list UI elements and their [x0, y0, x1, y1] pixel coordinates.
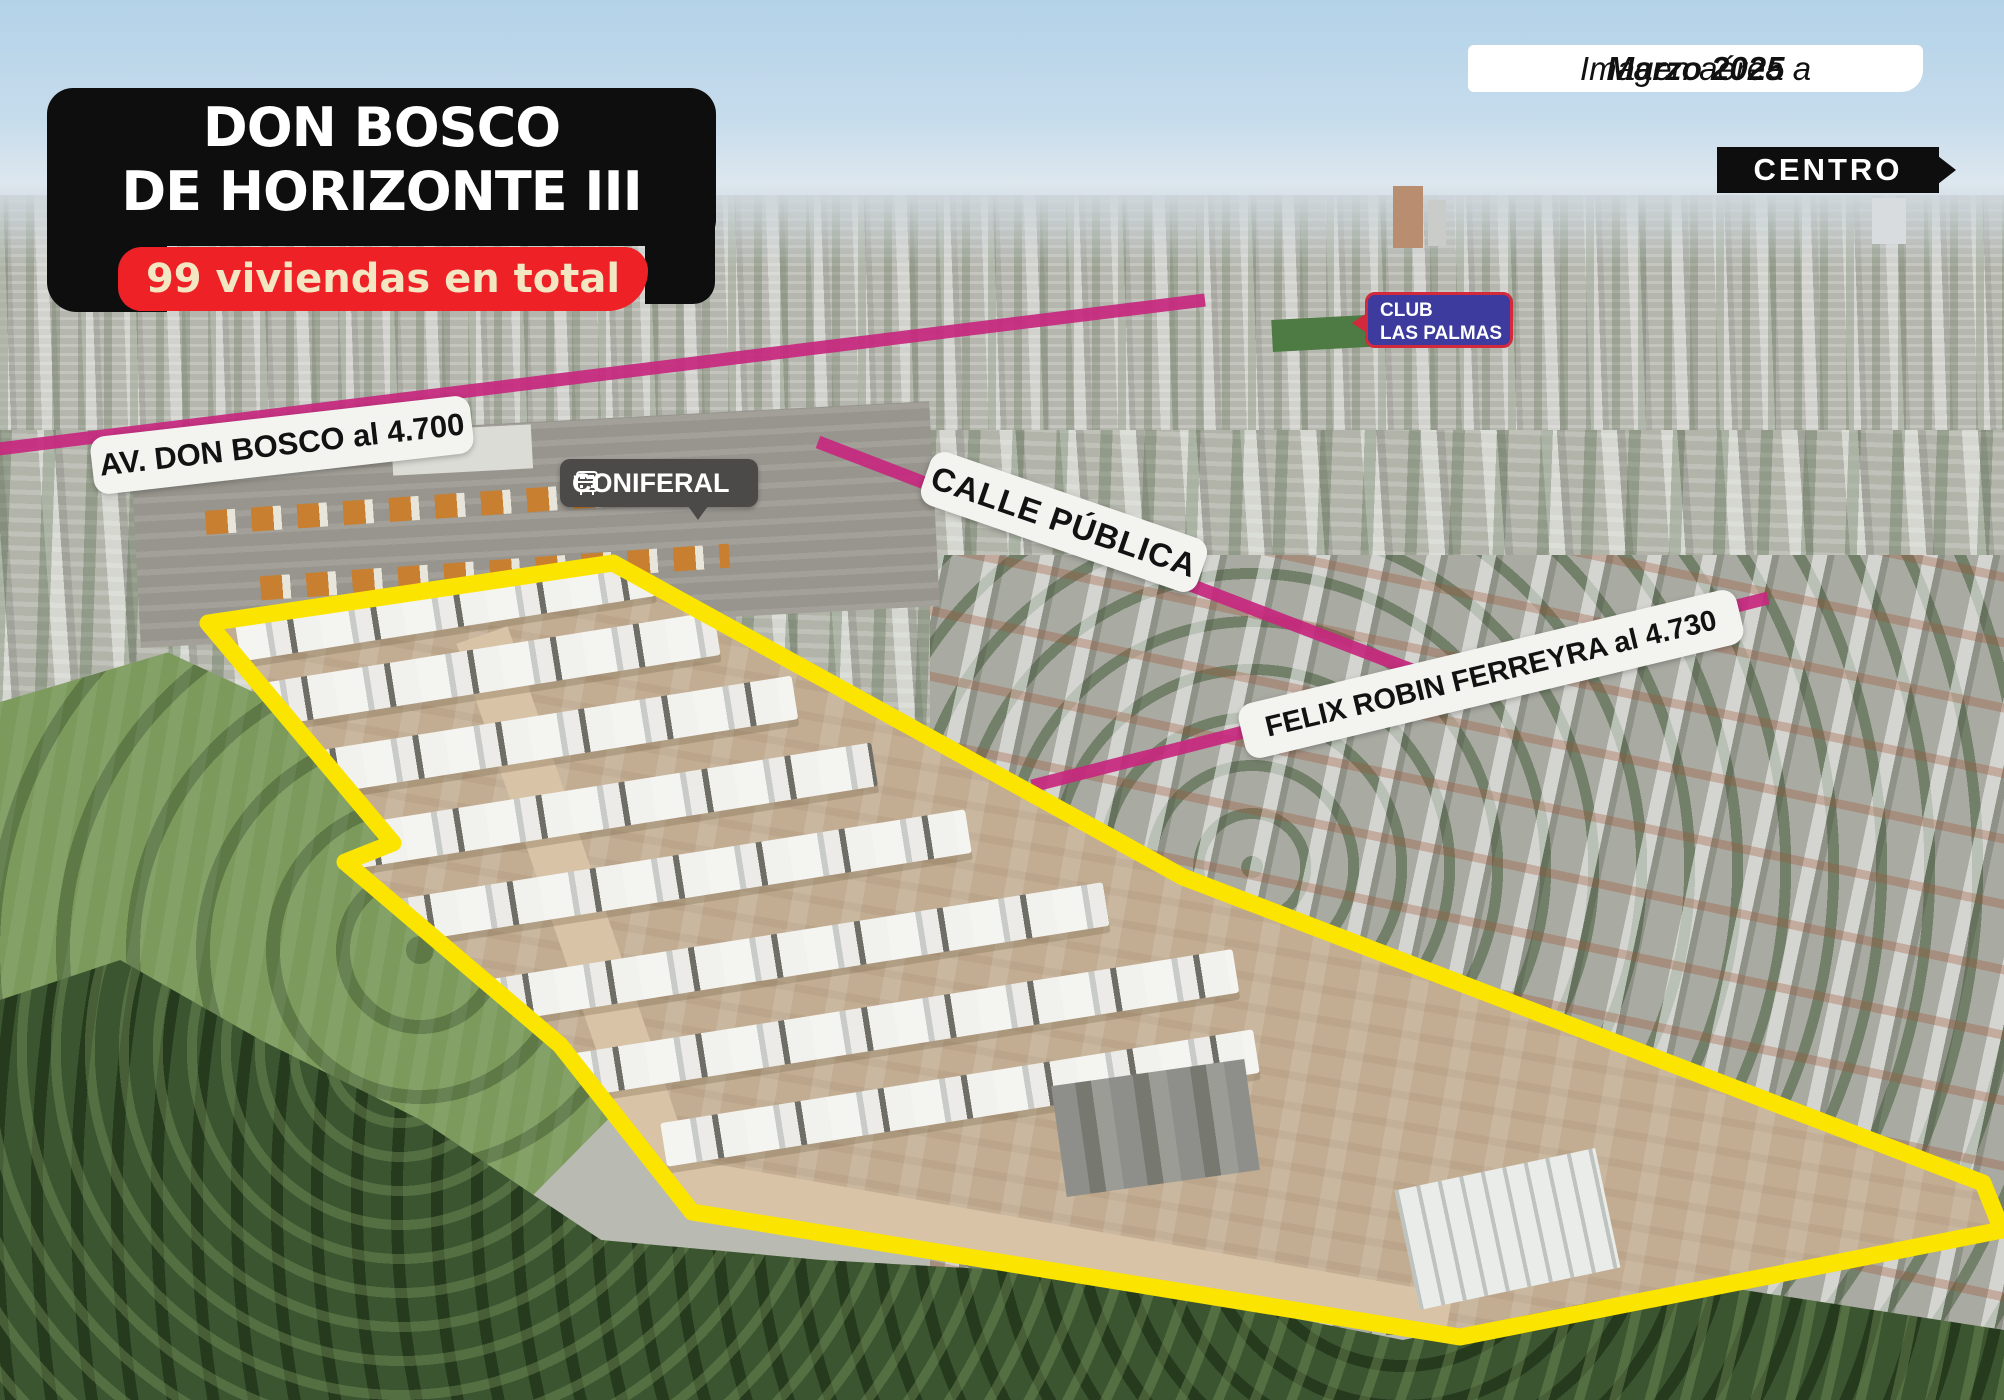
project-title: DON BOSCO DE HORIZONTE III: [47, 96, 716, 224]
coniferal-badge: CONIFERAL: [560, 459, 758, 507]
project-subtitle-banner: 99 viviendas en total: [118, 247, 648, 311]
club-las-palmas-badge: CLUB LAS PALMAS: [1365, 292, 1513, 348]
project-title-line1: DON BOSCO: [47, 96, 716, 160]
development-boundary: [208, 563, 2002, 1337]
aerial-caption: Imagen aérea a Marzo 2025: [1468, 45, 1923, 92]
project-title-line2: DE HORIZONTE III: [47, 160, 716, 224]
club-label-line1: CLUB: [1380, 299, 1510, 322]
caption-date: Marzo 2025: [1607, 50, 1785, 88]
aerial-map-infographic: AV. DON BOSCO al 4.700 CALLE PÚBLICA FEL…: [0, 0, 2004, 1400]
coniferal-label: CONIFERAL: [572, 468, 730, 499]
club-label-line2: LAS PALMAS: [1380, 322, 1510, 345]
centro-direction-badge: CENTRO: [1717, 147, 1939, 193]
